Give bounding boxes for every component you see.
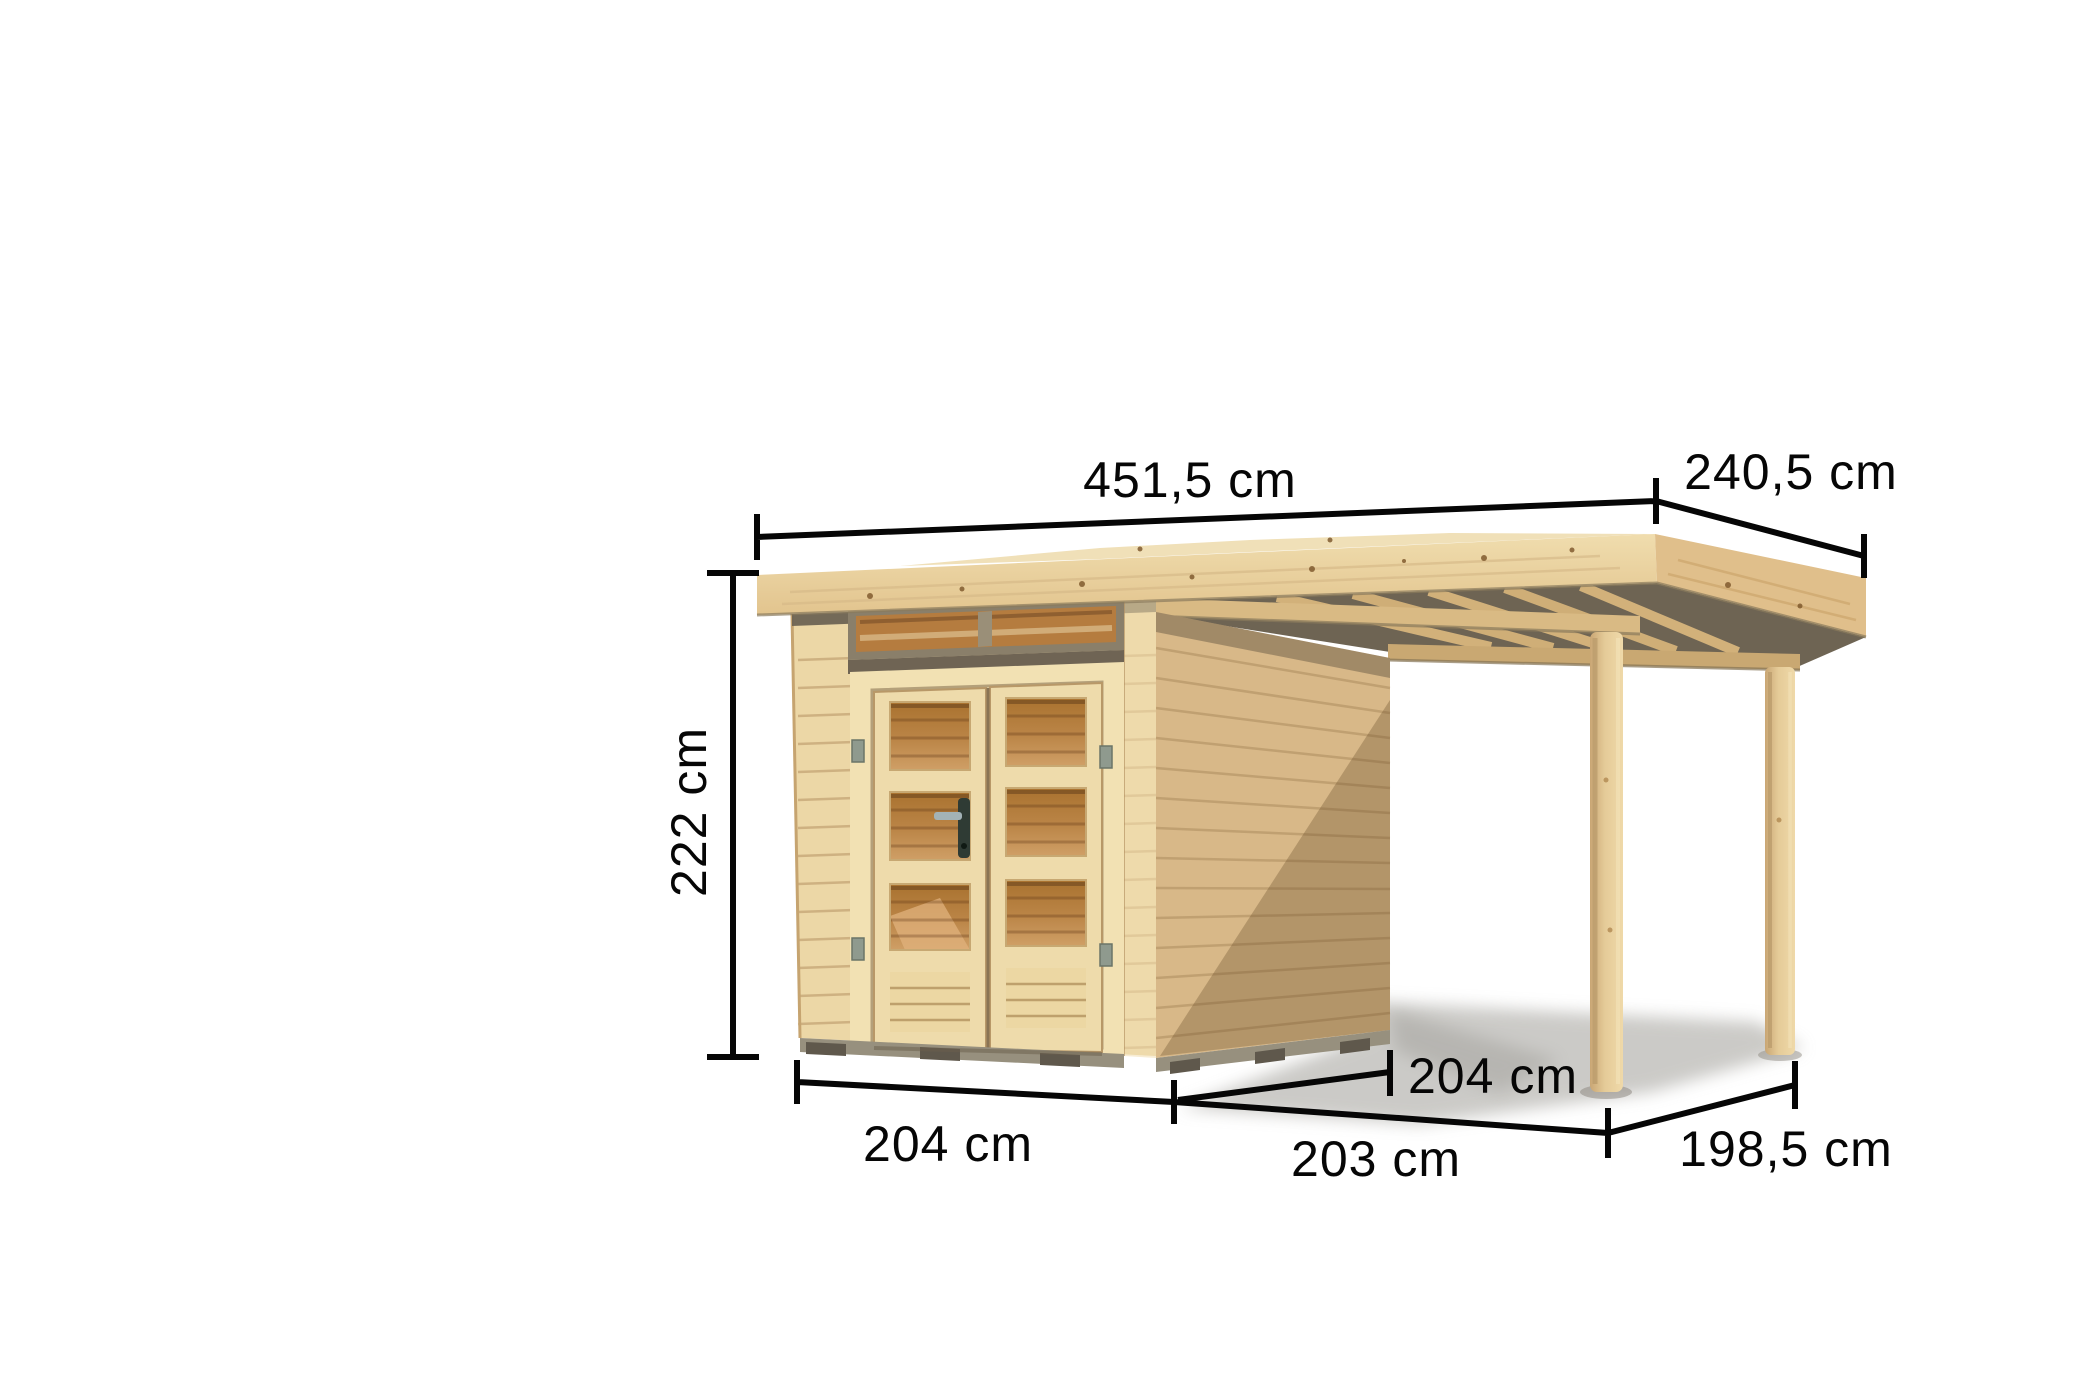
corner-trim <box>1124 600 1156 1058</box>
shed-side-depth-label: 204 cm <box>1408 1048 1578 1104</box>
annex-side-depth-label: 198,5 cm <box>1679 1121 1893 1177</box>
canopy-rear-post <box>1765 667 1795 1055</box>
canopy-front-post <box>1590 632 1623 1092</box>
wall-height-label: 222 cm <box>661 727 717 897</box>
annex-front-width-label: 203 cm <box>1291 1131 1461 1187</box>
shed-front-width-label: 204 cm <box>863 1116 1033 1172</box>
roof-depth-label: 240,5 cm <box>1684 444 1898 500</box>
door-left-leaf <box>874 688 986 1050</box>
door-right-leaf <box>990 683 1102 1052</box>
double-door <box>850 662 1124 1060</box>
transom-mullion <box>978 611 992 647</box>
door-bottom-panel-right <box>1006 968 1086 1028</box>
door-right-panes <box>1006 698 1086 946</box>
shed-side-wall <box>1156 612 1390 1074</box>
door-bottom-panel-left <box>890 972 970 1032</box>
dim-line-shed-front-width <box>797 1060 1174 1124</box>
product-illustration: 451,5 cm 240,5 cm 222 cm 204 cm 203 cm 1… <box>0 0 2100 1400</box>
roof-width-label: 451,5 cm <box>1083 452 1297 508</box>
